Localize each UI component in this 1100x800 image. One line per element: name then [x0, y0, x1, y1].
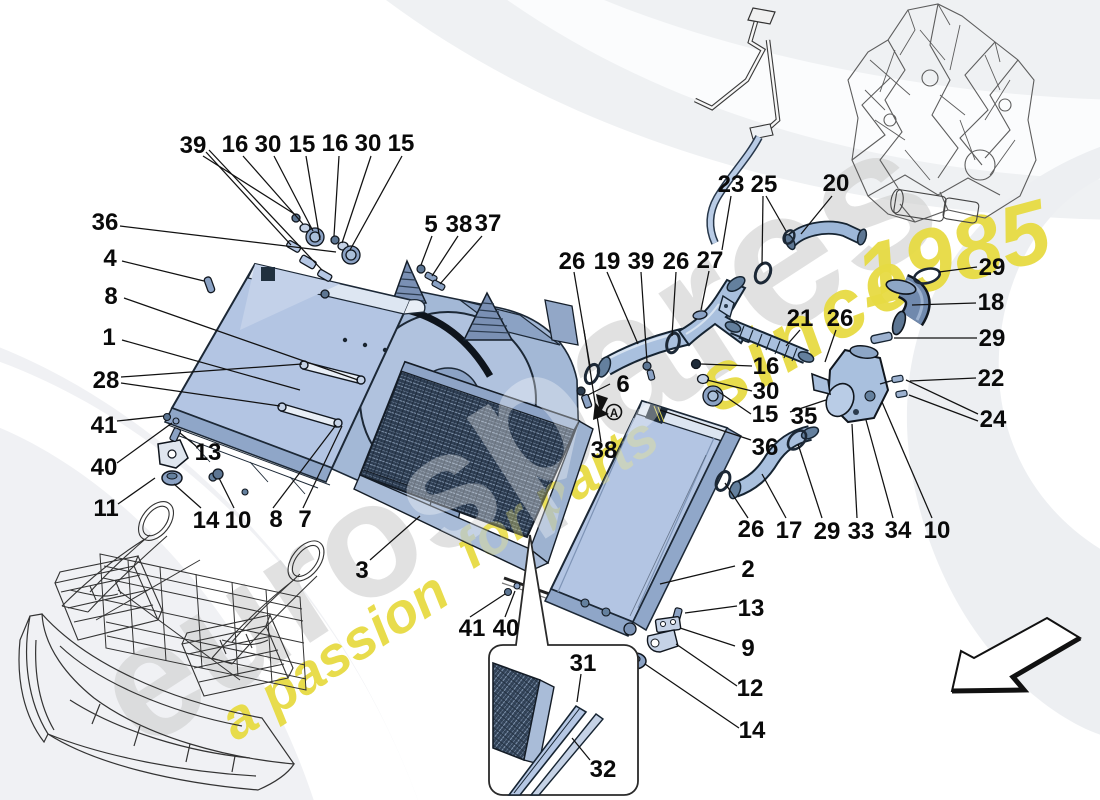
svg-text:26: 26: [738, 516, 765, 543]
svg-text:10: 10: [225, 507, 252, 534]
svg-text:27: 27: [697, 247, 724, 274]
svg-text:33: 33: [848, 518, 875, 545]
svg-text:20: 20: [823, 170, 850, 197]
svg-text:36: 36: [752, 434, 779, 461]
svg-text:4: 4: [103, 245, 117, 272]
svg-text:A: A: [610, 408, 618, 420]
svg-text:38: 38: [446, 211, 473, 238]
svg-text:19: 19: [594, 248, 621, 275]
svg-text:26: 26: [827, 305, 854, 332]
svg-text:41: 41: [459, 615, 486, 642]
svg-text:16: 16: [222, 131, 249, 158]
svg-text:30: 30: [255, 131, 282, 158]
svg-text:23: 23: [718, 171, 745, 198]
svg-text:7: 7: [298, 506, 311, 533]
svg-text:15: 15: [289, 131, 316, 158]
svg-text:29: 29: [814, 518, 841, 545]
svg-text:14: 14: [739, 717, 766, 744]
svg-text:5: 5: [424, 211, 437, 238]
svg-text:32: 32: [590, 756, 617, 783]
svg-text:15: 15: [752, 401, 779, 428]
svg-text:31: 31: [570, 650, 597, 677]
svg-text:8: 8: [269, 506, 282, 533]
svg-text:18: 18: [978, 289, 1005, 316]
svg-text:21: 21: [787, 305, 814, 332]
svg-text:22: 22: [978, 365, 1005, 392]
svg-text:1: 1: [102, 324, 115, 351]
svg-text:6: 6: [616, 371, 629, 398]
svg-text:10: 10: [924, 517, 951, 544]
svg-text:37: 37: [475, 210, 502, 237]
svg-text:12: 12: [737, 675, 764, 702]
svg-text:40: 40: [493, 615, 520, 642]
svg-text:30: 30: [355, 130, 382, 157]
svg-text:39: 39: [180, 132, 207, 159]
svg-text:9: 9: [741, 635, 754, 662]
svg-text:28: 28: [93, 367, 120, 394]
svg-text:36: 36: [92, 209, 119, 236]
svg-text:38: 38: [591, 437, 618, 464]
svg-text:17: 17: [776, 517, 803, 544]
svg-text:13: 13: [195, 439, 222, 466]
svg-text:26: 26: [663, 248, 690, 275]
svg-text:40: 40: [91, 454, 118, 481]
svg-text:13: 13: [738, 595, 765, 622]
svg-text:34: 34: [885, 517, 912, 544]
svg-text:39: 39: [628, 248, 655, 275]
svg-text:26: 26: [559, 248, 586, 275]
svg-text:11: 11: [93, 495, 118, 522]
svg-text:41: 41: [91, 412, 118, 439]
svg-text:25: 25: [751, 171, 778, 198]
svg-text:14: 14: [193, 507, 220, 534]
svg-text:16: 16: [322, 130, 349, 157]
svg-text:2: 2: [741, 556, 754, 583]
svg-text:29: 29: [979, 254, 1006, 281]
svg-text:15: 15: [388, 130, 415, 157]
svg-text:29: 29: [979, 325, 1006, 352]
svg-text:35: 35: [791, 403, 818, 430]
svg-text:16: 16: [753, 353, 780, 380]
svg-text:3: 3: [355, 557, 368, 584]
svg-text:24: 24: [980, 406, 1007, 433]
svg-text:8: 8: [104, 283, 117, 310]
